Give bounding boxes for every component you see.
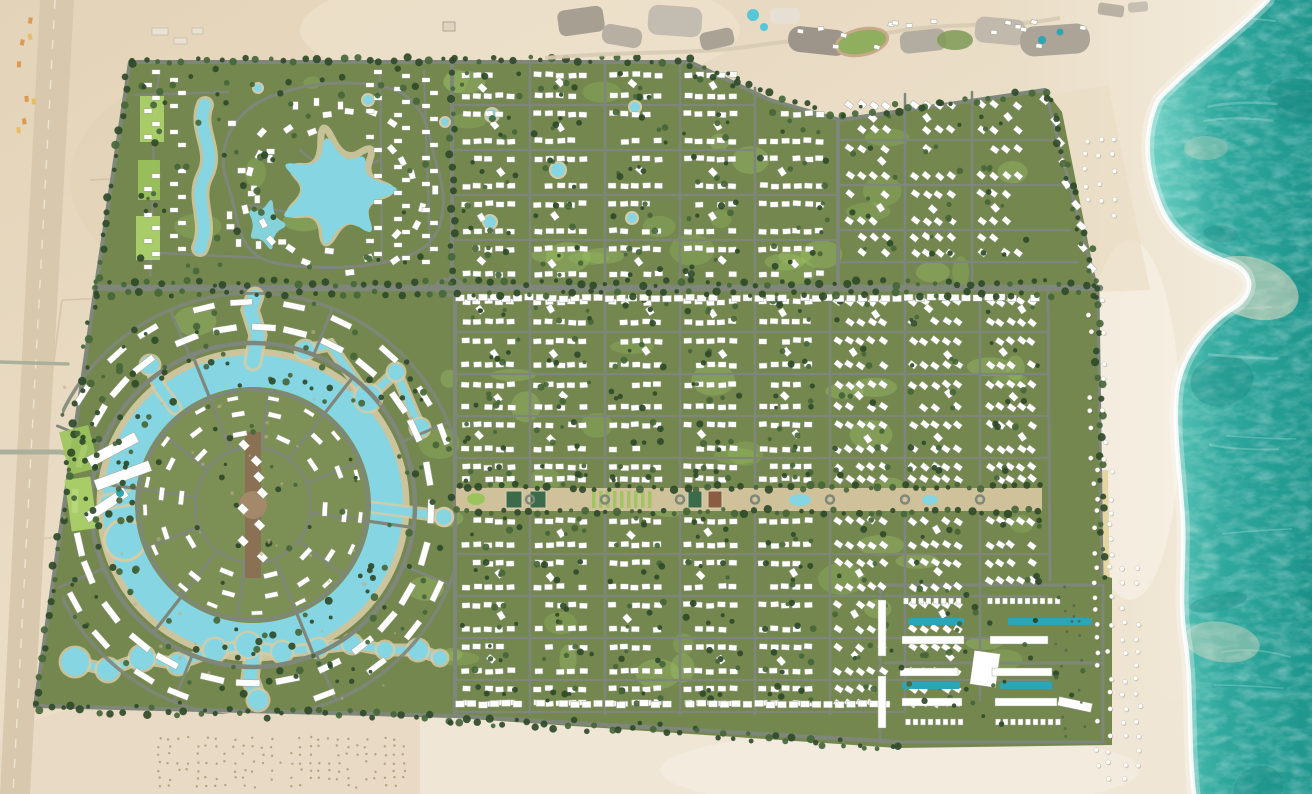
villa-building [759, 404, 767, 410]
ladder-rowhouse [402, 100, 410, 105]
villa-building [684, 517, 692, 523]
tree [384, 281, 392, 289]
tree [351, 667, 355, 671]
tree [657, 721, 662, 726]
ladder-rowhouse [170, 130, 178, 135]
desert-speckle [321, 630, 324, 633]
villa-building [770, 139, 778, 145]
ladder-rowhouse [170, 104, 178, 109]
speckle [374, 771, 376, 773]
villa-building [534, 92, 542, 98]
apartment-unit [1040, 598, 1045, 604]
tree [572, 185, 576, 189]
villa-building [579, 603, 587, 609]
villa-building [804, 584, 812, 590]
tree [240, 182, 247, 189]
villa-building [728, 156, 736, 162]
tree [618, 71, 623, 76]
speckle [299, 784, 301, 786]
tree [688, 270, 695, 277]
tree [507, 116, 511, 120]
ladder-rowhouse [394, 191, 402, 196]
community-villa [254, 195, 260, 203]
tree [540, 464, 544, 468]
beach-umbrella [1093, 607, 1098, 612]
tree [199, 711, 205, 717]
desert-speckle [394, 632, 396, 634]
tree [790, 463, 795, 468]
tree [474, 483, 482, 491]
tree [954, 282, 960, 288]
tree [447, 95, 455, 103]
tree [906, 278, 911, 283]
villa-building [610, 93, 618, 99]
apartment-unit [934, 598, 939, 604]
villa-building [484, 138, 492, 144]
rowhouse [502, 700, 511, 707]
villa-building [805, 157, 813, 163]
tree [487, 467, 492, 472]
tree [120, 480, 126, 486]
villa-building [546, 542, 554, 548]
villa-building [568, 320, 576, 326]
tree [223, 100, 229, 106]
villa-building [696, 644, 704, 650]
tree [885, 464, 891, 470]
tree [861, 352, 866, 357]
tree [715, 120, 721, 126]
tree [944, 507, 950, 513]
villa-building [579, 112, 587, 118]
tree [391, 57, 398, 64]
tree [577, 280, 585, 288]
tree [255, 293, 259, 297]
tree [731, 316, 737, 322]
villa-building [770, 584, 778, 590]
east-canal-pond [435, 508, 453, 526]
villa-building [717, 300, 725, 306]
tree [446, 446, 452, 452]
tree [253, 646, 260, 653]
tree [994, 280, 1000, 286]
beach-umbrella [1082, 166, 1087, 171]
villa-building [803, 446, 811, 452]
villa-building [717, 422, 725, 428]
tree [934, 485, 939, 490]
beach-umbrella [1124, 707, 1129, 712]
tree [144, 57, 150, 63]
tree [411, 278, 419, 286]
tree [313, 55, 321, 63]
tree [367, 567, 373, 573]
tree [151, 139, 158, 146]
villa-building [534, 404, 542, 410]
villa-building [706, 669, 714, 675]
tree [277, 90, 283, 96]
tree [446, 437, 451, 442]
speckle [336, 744, 338, 746]
tree [652, 485, 656, 489]
tree [955, 628, 960, 633]
tree [809, 509, 814, 514]
ladder-rowhouse [144, 265, 152, 270]
villa-building [653, 685, 661, 691]
tree [60, 413, 64, 417]
tree [661, 508, 667, 514]
tree [704, 292, 709, 297]
desert-speckle [264, 435, 268, 439]
rowhouse [720, 701, 729, 708]
tree [177, 59, 184, 66]
tree [155, 59, 160, 64]
tree [35, 689, 43, 697]
villa-building [717, 94, 725, 100]
speckle [159, 785, 161, 787]
tree [64, 489, 71, 496]
tree [558, 508, 563, 513]
tree [92, 465, 98, 471]
tree [488, 482, 493, 487]
tree [96, 710, 102, 716]
rowhouse [686, 294, 695, 301]
tree [523, 282, 529, 288]
villa-building [804, 686, 812, 692]
villa-building [484, 338, 492, 344]
tree [627, 604, 632, 609]
beach-umbrella [1112, 213, 1117, 218]
tree [657, 438, 664, 445]
ladder-rowhouse [402, 178, 410, 183]
villa-building [770, 318, 778, 324]
villa-building [506, 542, 514, 548]
tree [468, 226, 473, 231]
tree [195, 525, 200, 530]
tree [565, 203, 572, 210]
tree [358, 573, 363, 578]
villa-building [696, 403, 704, 409]
tree [1079, 242, 1084, 247]
villa-building [781, 518, 789, 524]
speckle [364, 746, 366, 748]
beach-umbrella [1135, 566, 1140, 571]
villa-building [506, 447, 514, 453]
tree [62, 508, 67, 513]
villa-building [620, 519, 628, 525]
tree [470, 160, 474, 164]
tree [1101, 547, 1105, 551]
villa-building [758, 229, 766, 235]
tree [979, 115, 984, 120]
tree [119, 709, 126, 716]
tree [985, 199, 991, 205]
tree [657, 127, 662, 132]
tree [723, 526, 729, 532]
speckle [243, 784, 245, 786]
tree [567, 692, 571, 696]
tree [972, 609, 978, 615]
desert-speckle [341, 697, 344, 700]
tree [603, 282, 607, 286]
tree [481, 73, 488, 80]
pond [550, 162, 566, 178]
speckle [373, 777, 375, 779]
tree [340, 292, 347, 299]
tree [49, 562, 57, 570]
tree [628, 167, 632, 171]
villa-building [545, 423, 553, 429]
tree [1056, 282, 1061, 287]
villa-building [484, 156, 492, 162]
tree [482, 543, 489, 550]
small-building [192, 28, 203, 34]
tree [559, 398, 566, 405]
ring-villa-bar [252, 323, 276, 331]
tree [1023, 482, 1030, 489]
villa-building [706, 184, 714, 190]
tree [365, 640, 370, 645]
tree [98, 260, 103, 265]
tree [852, 277, 860, 285]
villa-building [507, 519, 515, 525]
villa-building [533, 110, 541, 116]
tree [107, 292, 115, 300]
sandbar [1184, 136, 1228, 160]
tree [626, 625, 630, 629]
tree [73, 615, 77, 619]
tree [774, 683, 781, 690]
tree [716, 281, 721, 286]
speckle [160, 737, 162, 739]
tree [1021, 398, 1027, 404]
tree [561, 690, 568, 697]
villa-building [556, 338, 564, 344]
tree [574, 351, 581, 358]
tree [558, 116, 562, 120]
tree [721, 613, 725, 617]
speckle [290, 777, 292, 779]
tree [203, 364, 209, 370]
beach-umbrella [1094, 748, 1099, 753]
tree [648, 307, 653, 312]
tree [987, 620, 992, 625]
villa-building [782, 246, 790, 252]
tree [800, 127, 805, 132]
tree [96, 274, 103, 281]
tree [222, 153, 227, 158]
lawn-patch [673, 633, 694, 655]
desert-speckle [194, 642, 197, 645]
tree [868, 145, 873, 150]
villa-building [495, 111, 503, 117]
tree [808, 398, 814, 404]
villa-building [535, 475, 543, 481]
tree [270, 465, 274, 469]
villa-building [463, 111, 471, 117]
tree [1054, 675, 1059, 680]
ladder-rowhouse [152, 226, 160, 231]
villa-building [729, 338, 737, 344]
tree [403, 260, 407, 264]
tree [271, 277, 278, 284]
apartment-unit [943, 719, 948, 725]
villa-building [579, 272, 587, 278]
tree [944, 292, 952, 300]
tree [795, 432, 801, 438]
villa-building [632, 362, 640, 368]
villa-building [728, 421, 736, 427]
pond [362, 94, 374, 106]
tree [650, 511, 655, 516]
tree [545, 531, 550, 536]
tree [729, 619, 734, 624]
villa-building [609, 669, 617, 675]
villa-building [685, 138, 693, 144]
speckle [345, 752, 347, 754]
tree [156, 88, 164, 96]
tree [329, 616, 333, 620]
tree [658, 59, 666, 67]
villa-building [608, 183, 616, 189]
villa-building [654, 477, 662, 483]
tree [1035, 363, 1040, 368]
tree [484, 691, 490, 697]
tree [437, 545, 443, 551]
tree [425, 56, 433, 64]
villa-building [461, 361, 469, 367]
ladder-rowhouse [394, 243, 402, 248]
tree [1011, 482, 1017, 488]
tree [1072, 189, 1078, 195]
beach-furniture [1064, 735, 1067, 738]
tree [252, 56, 259, 63]
villa-building [729, 465, 737, 471]
beach-umbrella [1120, 692, 1125, 697]
tree [420, 389, 427, 396]
tree [919, 580, 923, 584]
rowhouse [962, 295, 971, 302]
ladder-rowhouse [170, 78, 178, 83]
villa-building [620, 339, 628, 345]
rowhouse [663, 295, 672, 302]
villa-building [642, 245, 650, 251]
aerial-map-svg [0, 0, 1312, 794]
villa-building [578, 320, 586, 326]
tree [465, 71, 469, 75]
tree [720, 560, 726, 566]
rowhouse [605, 295, 614, 302]
tree [641, 168, 647, 174]
villa-building [474, 202, 482, 208]
tree [309, 280, 317, 288]
beach-umbrella [1123, 763, 1128, 768]
villa-building [804, 464, 812, 470]
roadside-structure [32, 98, 36, 104]
speckle [403, 745, 405, 747]
tree [1067, 279, 1074, 286]
sports-court [688, 491, 702, 508]
villa-building [654, 157, 662, 163]
tree [493, 402, 500, 409]
tree [571, 717, 577, 723]
tree [512, 129, 517, 134]
tree [53, 533, 61, 541]
tree [531, 130, 538, 137]
tree [306, 114, 311, 119]
tree [922, 441, 926, 445]
tree [450, 187, 457, 194]
speckle [185, 768, 187, 770]
villa-building [496, 383, 504, 389]
tree [699, 690, 706, 697]
tree [630, 725, 636, 731]
desert-speckle [268, 539, 271, 542]
tree [390, 711, 396, 717]
tree [116, 568, 123, 575]
tree [695, 382, 699, 386]
tree [41, 626, 48, 633]
tree [486, 246, 491, 251]
villa-building [782, 228, 790, 234]
tree [889, 484, 896, 491]
speckle [251, 745, 253, 747]
rowhouse [651, 701, 660, 708]
villa-building [473, 560, 481, 566]
tree [499, 482, 505, 488]
tree [649, 320, 656, 327]
ring-villa-bar [230, 299, 252, 306]
speckle [384, 777, 386, 779]
tree [501, 603, 507, 609]
resort-roof [833, 44, 839, 49]
villa-building [578, 422, 586, 428]
tree [1094, 285, 1100, 291]
ladder-rowhouse [144, 135, 152, 140]
villa-building [642, 423, 650, 429]
tree [563, 80, 569, 86]
rowhouse [881, 295, 890, 302]
beach-umbrella [1101, 457, 1106, 462]
tree [1034, 508, 1041, 515]
villa-building [632, 602, 640, 608]
villa-building [684, 245, 692, 251]
tree [491, 604, 498, 611]
apartment-unit [936, 719, 941, 725]
beach-umbrella [1109, 594, 1114, 599]
apartment-unit [913, 719, 918, 725]
villa-building [485, 271, 493, 277]
villa-building [758, 686, 766, 692]
tree [929, 235, 933, 239]
villa-building [545, 602, 553, 608]
desert-speckle [176, 590, 178, 592]
tree [400, 395, 405, 400]
speckle [347, 746, 349, 748]
tree [503, 652, 509, 658]
waterpark-pool [760, 23, 768, 31]
beach-umbrella [1134, 581, 1139, 586]
tree [545, 699, 549, 703]
tree [936, 445, 942, 451]
beach-umbrella [1095, 635, 1100, 640]
villa-building [771, 561, 779, 567]
tree [791, 289, 797, 295]
tree [1063, 176, 1068, 181]
tree [447, 205, 455, 213]
tree [338, 92, 345, 99]
tree [778, 483, 782, 487]
ladder-rowhouse [402, 256, 410, 261]
villa-building [608, 201, 616, 207]
